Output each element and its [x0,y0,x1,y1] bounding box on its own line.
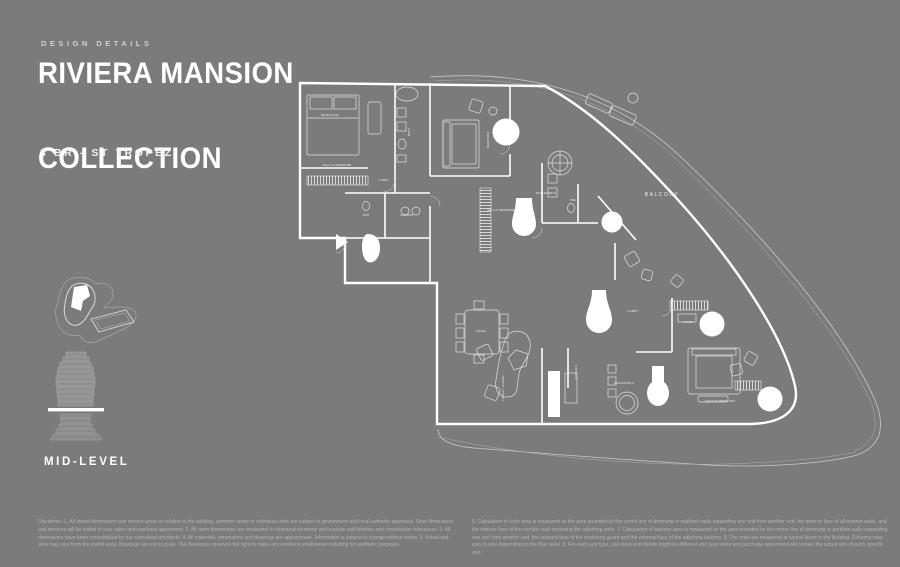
kitchen-counter [548,371,560,417]
foyer-column [647,366,669,406]
unit-type-subtitle: 3 BR - ST TROPEZ [40,147,174,159]
section-eyebrow: DESIGN DETAILS [41,39,152,48]
room-label: WALK-IN WARDROBE [323,164,352,167]
site-podium-outline [91,310,134,332]
room-label: STORE [683,320,693,324]
room-label: BALCONY [645,192,679,198]
building-mid-level-band [48,408,104,411]
room-label: DINING [476,330,486,333]
room-label: LAUNDRY [400,214,413,217]
room-label: PWD [363,214,369,217]
site-podium-inner [95,313,130,329]
disclaimer-right: 6. Calculation of units area is measured… [472,519,892,558]
room-label: MASTER BATH [536,191,556,195]
room-label: BEDROOM [321,113,339,117]
site-plan-icon [38,274,140,353]
room-label: BATH [407,128,411,136]
site-highlight-wedge [71,285,90,311]
page-title-line1: RIVIERA MANSION [38,57,294,90]
building-floors [56,352,95,406]
room-label: LOBBY [379,178,390,182]
room-label: LOBBY [628,309,639,313]
room-label: PWD [570,199,576,202]
site-outer-contour [56,277,137,342]
room-label: WALK IN WARDROBE [487,209,515,212]
door-swings [336,144,672,316]
floor-plan: BALCONYBEDROOMBATHWALK-IN WARDROBELOBBYP… [280,48,900,483]
room-label: BEDROOM [486,131,490,148]
room-label: MASTER BEDROOM [705,399,735,403]
room-label: FOYER [374,250,377,260]
page-title: RIVIERA MANSION COLLECTION [38,53,294,181]
level-label: MID-LEVEL [44,456,129,468]
disclaimer-left: Disclaimer: 1. All stated dimensions and… [38,519,458,550]
building-base [50,414,102,440]
room-label: KITCHEN [574,365,578,379]
entrance-door-icon [336,234,348,250]
room-label: LIVING / DINING [501,375,505,401]
room-label: MASTER BATH [614,382,634,385]
building-level-icon [44,348,108,449]
